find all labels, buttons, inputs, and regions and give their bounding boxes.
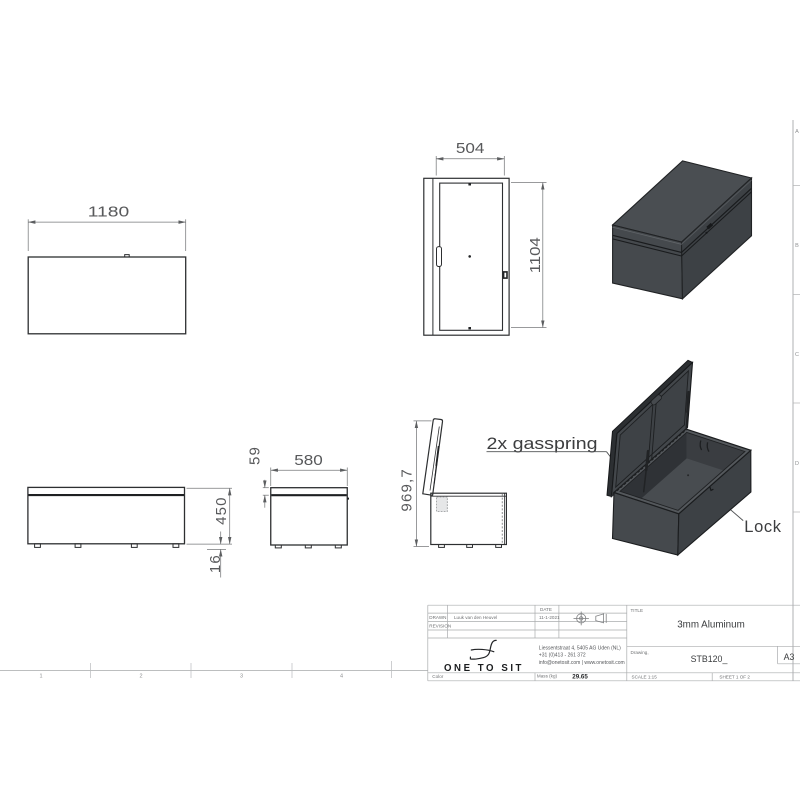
svg-text:Drawing,: Drawing, — [631, 650, 649, 655]
svg-text:DATE: DATE — [540, 607, 552, 612]
svg-text:Mass (kg): Mass (kg) — [537, 674, 558, 679]
svg-text:2: 2 — [139, 674, 142, 680]
svg-text:STB120_: STB120_ — [691, 654, 728, 664]
svg-text:ONE TO SIT: ONE TO SIT — [444, 663, 524, 674]
svg-text:2x gasspring: 2x gasspring — [487, 435, 598, 453]
svg-text:504: 504 — [456, 140, 485, 157]
svg-text:info@onetosit.com | www.onetos: info@onetosit.com | www.onetosit.com — [539, 660, 625, 666]
svg-text:SHEET 1 OF 2: SHEET 1 OF 2 — [719, 675, 750, 680]
svg-text:1104: 1104 — [527, 237, 544, 273]
svg-text:REVISION: REVISION — [429, 624, 451, 629]
svg-text:Lock: Lock — [744, 518, 781, 536]
svg-text:1: 1 — [39, 674, 42, 680]
svg-text:TITLE: TITLE — [631, 608, 644, 613]
svg-text:+31 (0)413 - 261 372: +31 (0)413 - 261 372 — [539, 653, 586, 659]
svg-text:D: D — [795, 461, 799, 467]
svg-text:11-1-2021: 11-1-2021 — [539, 615, 560, 620]
svg-text:SCALE 1:15: SCALE 1:15 — [632, 675, 658, 680]
svg-text:A3: A3 — [784, 652, 795, 662]
svg-text:3mm Aluminum: 3mm Aluminum — [677, 620, 745, 631]
svg-text:A: A — [795, 129, 799, 135]
svg-text:Luuk van den Heuvel: Luuk van den Heuvel — [454, 615, 497, 620]
svg-text:450: 450 — [213, 496, 230, 525]
svg-text:969,7: 969,7 — [399, 468, 416, 512]
svg-text:4: 4 — [340, 674, 343, 680]
svg-text:59: 59 — [246, 446, 263, 465]
svg-text:3: 3 — [240, 674, 243, 680]
svg-text:580: 580 — [294, 452, 323, 469]
svg-text:Liessentstraat 4, 5405 AG Uden: Liessentstraat 4, 5405 AG Uden (NL) — [539, 646, 621, 652]
svg-text:Color: Color — [432, 674, 443, 679]
svg-text:B: B — [795, 243, 799, 249]
svg-text:DRAWN: DRAWN — [429, 615, 446, 620]
svg-text:16: 16 — [207, 554, 224, 573]
svg-text:C: C — [795, 352, 799, 358]
svg-text:29.65: 29.65 — [572, 673, 588, 680]
svg-text:1180: 1180 — [88, 204, 130, 221]
